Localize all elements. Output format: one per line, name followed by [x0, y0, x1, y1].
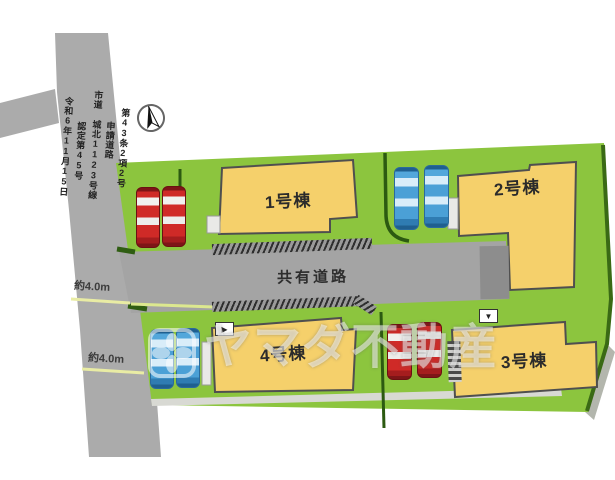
- road-annotation-text: 第43条2項2号 申請道路 市道 城北1123号線 認定第45号 令和6年11月…: [47, 88, 132, 242]
- road-width-label-lower: 約4.0m: [88, 349, 125, 367]
- car-red-lot1-b: [162, 186, 186, 247]
- shared-road-label: 共有道路: [253, 265, 373, 288]
- junction-edge-upper: [117, 249, 135, 252]
- road-text-col-2: 申請道路: [102, 121, 116, 160]
- steps-building-3: [447, 341, 461, 382]
- car-blue-lot4-a: [150, 329, 174, 389]
- road-text-col-5: 令和6年11月15日: [57, 96, 75, 197]
- road-text-col-3: 市道 城北1123号線: [86, 90, 105, 200]
- car-blue-lot4-b: [176, 328, 200, 388]
- steps-building-2: [448, 198, 458, 229]
- north-arrow-icon: [136, 103, 166, 133]
- site-plan-canvas: ▶ ▼ 1号棟 2号棟 3号棟 4号棟 共有道路 約4.0m 約4.0m 第43…: [0, 0, 615, 480]
- road-width-label-upper: 約4.0m: [74, 277, 111, 295]
- car-red-lot3-a: [387, 324, 412, 380]
- building-3-label: 3号棟: [478, 345, 569, 375]
- entrance-marker-building-3: ▼: [479, 309, 498, 323]
- road-branch: [0, 89, 59, 138]
- building-1-label: 1号棟: [242, 185, 333, 215]
- car-red-lot3-b: [417, 322, 442, 378]
- car-red-lot1-a: [136, 187, 160, 248]
- road-text-col-4: 認定第45号: [72, 121, 88, 181]
- road-end-patch: [480, 246, 510, 299]
- porch-building-1: [207, 216, 220, 233]
- steps-building-4: [202, 342, 211, 385]
- car-blue-lot2-a: [394, 167, 419, 230]
- junction-edge-lower: [128, 306, 147, 309]
- car-blue-lot2-b: [424, 165, 449, 228]
- entrance-marker-building-4: ▶: [215, 322, 234, 336]
